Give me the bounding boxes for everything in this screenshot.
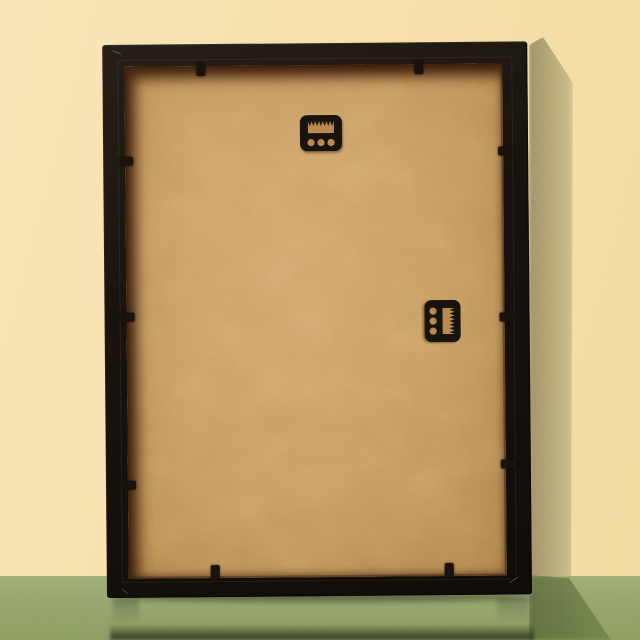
- sawtooth-hanger-top: [299, 114, 343, 152]
- retainer-tab-left-3: [122, 481, 136, 490]
- scratch-mark: [122, 588, 129, 594]
- retainer-tab-right-1: [498, 146, 512, 155]
- retainer-tab-top-1: [196, 62, 205, 76]
- retainer-tab-bottom-1: [211, 565, 220, 579]
- wall-cast-shadow: [529, 37, 573, 578]
- retainer-tab-right-3: [501, 459, 515, 468]
- retainer-tab-top-2: [414, 60, 423, 74]
- retainer-tab-left-1: [119, 157, 133, 166]
- scene: [0, 0, 640, 640]
- scratch-mark: [112, 50, 121, 55]
- reflection-streak-right: [497, 597, 529, 623]
- retainer-tab-bottom-2: [445, 563, 454, 577]
- retainer-tab-left-2: [121, 313, 135, 322]
- retainer-tab-right-2: [500, 312, 514, 321]
- frame-reflection: [110, 624, 534, 640]
- reflection-streak-left: [113, 598, 139, 626]
- picture-frame-back: [102, 41, 532, 598]
- sawtooth-hanger-side: [423, 299, 461, 343]
